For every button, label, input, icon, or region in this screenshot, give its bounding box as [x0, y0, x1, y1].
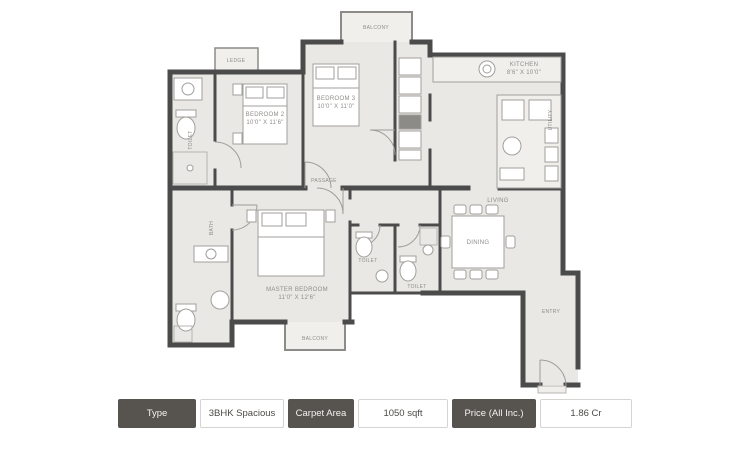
floor-plan-page: BALCONY LEDGE BEDROOM 2 10'0" X 11'6" BE… [0, 0, 750, 450]
label-utility: UTILITY [548, 109, 554, 130]
label-bedroom2-name: BEDROOM 2 [246, 112, 285, 118]
label-ledge: LEDGE [227, 58, 246, 64]
label-kitchen-dims: 8'6" X 10'0" [507, 70, 541, 76]
bed-bedroom3 [313, 64, 359, 126]
spec-cell-area-value: 1050 sqft [358, 399, 448, 428]
label-living: LIVING [487, 198, 509, 204]
floor-plan: BALCONY LEDGE BEDROOM 2 10'0" X 11'6" BE… [0, 0, 750, 450]
label-bath: BATH [209, 221, 215, 235]
label-bedroom2-dims: 10'0" X 11'6" [246, 120, 283, 126]
spec-cell-price-label: Price (All Inc.) [452, 399, 536, 428]
spec-table: Type 3BHK Spacious Carpet Area 1050 sqft… [118, 399, 632, 428]
label-kitchen-name: KITCHEN [510, 62, 538, 68]
spec-cell-area-label: Carpet Area [288, 399, 354, 428]
label-balcony-top: BALCONY [363, 25, 389, 31]
label-passage: PASSAGE [311, 178, 337, 184]
wardrobe-column [399, 58, 421, 160]
label-dining: DINING [467, 240, 490, 246]
label-toilet2: TOILET [407, 284, 426, 290]
entry-step [538, 386, 566, 393]
label-entry: ENTRY [542, 309, 561, 315]
spec-cell-type-label: Type [118, 399, 196, 428]
spec-cell-price-value: 1.86 Cr [540, 399, 632, 428]
kitchen-sink [479, 61, 495, 77]
label-master-name: MASTER BEDROOM [266, 287, 328, 293]
label-balcony-bottom: BALCONY [302, 336, 328, 342]
label-toilet1: TOILET [358, 258, 377, 264]
label-bedroom3-dims: 10'0" X 11'0" [317, 104, 354, 110]
bed-master [247, 210, 335, 276]
label-bedroom3-name: BEDROOM 3 [317, 96, 356, 102]
label-master-dims: 11'0" X 12'6" [278, 295, 315, 301]
label-toilet-left: TOILET [188, 130, 194, 149]
spec-cell-type-value: 3BHK Spacious [200, 399, 284, 428]
